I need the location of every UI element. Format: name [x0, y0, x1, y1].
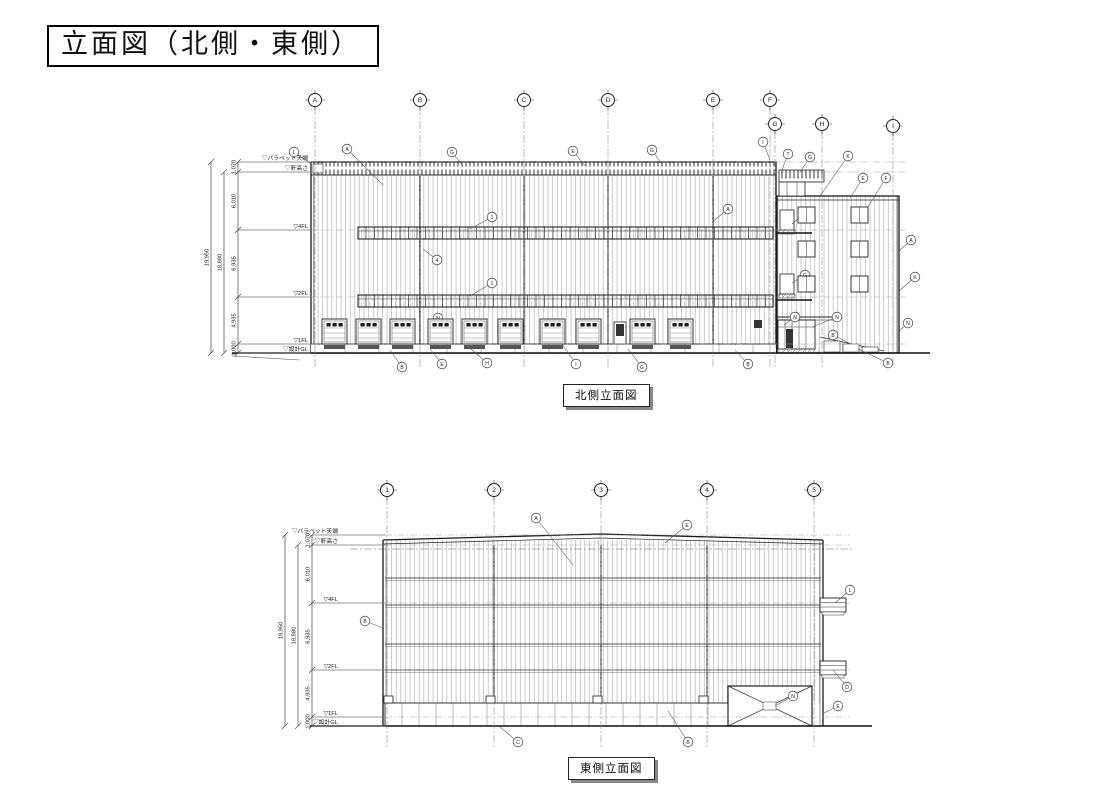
dock-door-window	[467, 323, 471, 327]
grid-bubble-label: I	[892, 123, 894, 130]
dock-door	[390, 319, 415, 344]
dock-door-window	[445, 323, 449, 327]
entrance-door-leaf	[786, 329, 793, 348]
dim-value: 18,880	[292, 627, 298, 645]
level-label: ▽設計GL	[283, 345, 309, 353]
dock-door-window	[361, 323, 365, 327]
dock-pit	[392, 345, 413, 349]
dock-door-window	[473, 323, 477, 327]
dock-door-window	[635, 323, 639, 327]
level-label: ▽軒高さ	[315, 537, 338, 545]
annotation-label: I	[762, 140, 763, 146]
man-door-glass	[616, 324, 624, 336]
dock-door-window	[545, 323, 549, 327]
dock-door-window	[373, 323, 377, 327]
dim-value: 4,935	[232, 313, 238, 328]
base-panel-tab	[593, 696, 602, 703]
stair-window-sill	[779, 230, 795, 234]
annotation-label: 1	[491, 281, 494, 287]
dock-pit	[578, 345, 599, 349]
annotation-label: N	[835, 315, 839, 321]
dock-pit	[670, 345, 691, 349]
grid-bubble-label: A	[313, 97, 318, 104]
dock-door-window	[395, 323, 399, 327]
dock-door-window	[509, 323, 513, 327]
dock-door	[462, 319, 487, 344]
east-elevation-drawing	[310, 534, 872, 726]
grid-bubble-label: 5	[812, 487, 816, 494]
dim-value: 6,935	[232, 256, 238, 271]
annotation-label: N	[791, 694, 795, 700]
dim-value: 1,000	[306, 714, 312, 729]
dock-door	[668, 319, 693, 344]
dim-value: 6,935	[306, 629, 312, 644]
north-annex	[776, 170, 899, 354]
base-panel-tab	[486, 696, 495, 703]
level-label: ▽2FL	[294, 291, 309, 297]
annotation-label: 1	[491, 215, 494, 221]
level-label: ▽4FL	[294, 224, 309, 230]
annex-penthouse	[779, 182, 805, 196]
annotation-label: C	[516, 740, 520, 746]
dim-value: 19,950	[205, 249, 211, 267]
dock-door-window	[593, 323, 597, 327]
dock-door-window	[503, 323, 507, 327]
grid-bubble-label: F	[768, 97, 772, 104]
dock-door-window	[439, 323, 443, 327]
dock-door	[540, 319, 565, 344]
dock-pit	[464, 345, 485, 349]
dock-door-window	[587, 323, 591, 327]
level-label: ▽軒高さ	[285, 164, 308, 172]
dock-door-window	[581, 323, 585, 327]
annotation-label: T	[786, 152, 789, 158]
grid-bubble-label: E	[711, 97, 716, 104]
dock-door-window	[647, 323, 651, 327]
dim-value: 6,010	[306, 567, 312, 582]
annotation-label: G	[808, 155, 812, 161]
dock-door-window	[685, 323, 689, 327]
annotation-label: H	[485, 361, 489, 367]
dock-door-window	[479, 323, 483, 327]
annotation-label: G	[640, 365, 644, 371]
level-label: ▽設計GL	[313, 718, 339, 726]
dock-door-window	[401, 323, 405, 327]
annotation-label: I	[575, 362, 576, 368]
dock-door	[322, 319, 347, 344]
dock-door-window	[367, 323, 371, 327]
stair-window	[780, 274, 794, 294]
dock-door-window	[515, 323, 519, 327]
east-siding	[385, 540, 821, 703]
grid-bubble-label: 1	[385, 487, 389, 494]
annotation-label: N	[793, 315, 797, 321]
east-base-panels	[385, 703, 728, 726]
annotation-label: F	[884, 176, 887, 182]
grid-bubble-label: 4	[705, 487, 709, 494]
dock-door	[576, 319, 601, 344]
annex-entrance	[778, 320, 815, 349]
level-label: ▽パラペット天端	[292, 527, 339, 535]
dim-value: 19,950	[279, 622, 285, 640]
stair-window	[780, 210, 794, 230]
dock-pit	[542, 345, 563, 349]
stair-window-sill	[779, 294, 795, 298]
dock-pit	[324, 345, 345, 349]
parapet-end-panel	[313, 164, 323, 173]
annotation-label: G	[650, 148, 654, 154]
base-panel-tab	[384, 696, 393, 703]
dock-pit	[358, 345, 379, 349]
dim-value: 6,010	[232, 194, 238, 209]
annotation-label: N	[906, 321, 910, 327]
dock-pit	[632, 345, 653, 349]
annotation-label: G	[450, 150, 454, 156]
dim-value: 1,070	[232, 160, 238, 175]
annotation-label: L	[293, 150, 296, 156]
east-x-braced-opening	[728, 686, 812, 726]
grid-bubble-label: D	[606, 97, 611, 104]
dock-door-window	[679, 323, 683, 327]
dim-value: 4,935	[306, 686, 312, 701]
north-elevation-caption: 北側立面図	[563, 384, 650, 407]
east-elevation-caption: 東側立面図	[568, 757, 655, 780]
dock-door	[356, 319, 381, 344]
dock-door	[498, 319, 523, 344]
grid-bubble-label: G	[772, 121, 777, 128]
wall-box	[754, 320, 762, 328]
elevation-drawing-svg: ▽パラペット天端▽軒高さ▽4FL▽2FL▽1FL▽設計GL1,0706,0106…	[0, 0, 1114, 788]
annotation-label: D	[845, 685, 849, 691]
dock-door	[630, 319, 655, 344]
annotation-label: L	[849, 588, 852, 594]
grid-bubble-label: B	[418, 97, 422, 104]
grid-bubble-label: H	[820, 121, 825, 128]
dock-pit	[500, 345, 521, 349]
level-label: ▽2FL	[324, 664, 339, 670]
level-label: ▽パラペット天端	[262, 154, 309, 162]
dim-value: 18,880	[218, 254, 224, 272]
level-label: ▽4FL	[324, 597, 339, 603]
dock-door-window	[551, 323, 555, 327]
dock-door-window	[673, 323, 677, 327]
east-wall-hoods	[820, 598, 846, 678]
dock-door	[428, 319, 453, 344]
drawing-sheet: ▽パラペット天端▽軒高さ▽4FL▽2FL▽1FL▽設計GL1,0706,0106…	[0, 0, 1114, 788]
dock-door-window	[333, 323, 337, 327]
level-label: ▽1FL	[294, 338, 309, 344]
dock-door-window	[327, 323, 331, 327]
grid-bubble-label: 3	[599, 487, 603, 494]
base-panel-tab	[699, 696, 708, 703]
dim-value: 1,000	[232, 341, 238, 356]
grid-bubble-label: 2	[492, 487, 496, 494]
annotation-label: 4	[436, 258, 439, 264]
dim-value: 1,070	[306, 533, 312, 548]
grid-bubble-label: C	[522, 97, 527, 104]
dock-pit	[430, 345, 451, 349]
sheet-title: 立面図（北側・東側）	[47, 25, 379, 67]
dock-door-window	[641, 323, 645, 327]
level-label: ▽1FL	[324, 711, 339, 717]
dock-door-window	[433, 323, 437, 327]
dock-door-window	[407, 323, 411, 327]
north-parapet-band	[311, 162, 776, 175]
dock-door-window	[339, 323, 343, 327]
dock-door-window	[557, 323, 561, 327]
